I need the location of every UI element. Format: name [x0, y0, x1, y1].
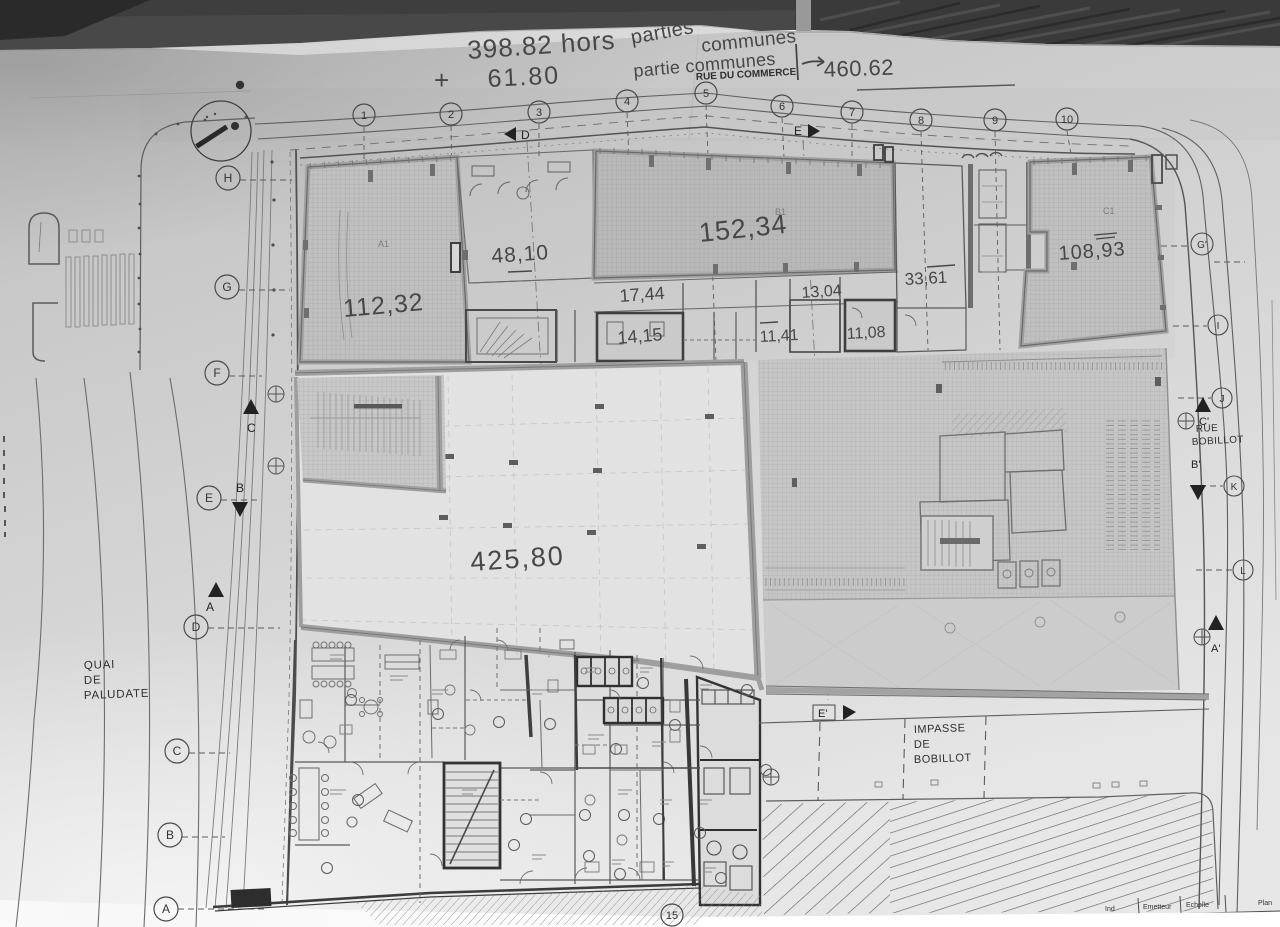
- svg-text:J: J: [1220, 394, 1225, 405]
- svg-text:L: L: [1240, 566, 1246, 577]
- svg-text:1: 1: [361, 110, 367, 122]
- svg-text:G': G': [1197, 240, 1207, 251]
- svg-text:DE: DE: [914, 738, 931, 751]
- svg-text:5: 5: [703, 88, 709, 100]
- svg-text:G: G: [222, 280, 231, 294]
- svg-text:IMPASSE: IMPASSE: [914, 722, 966, 736]
- svg-text:61.80: 61.80: [487, 61, 561, 93]
- svg-text:Echelle: Echelle: [1186, 902, 1209, 909]
- svg-text:E: E: [794, 124, 802, 138]
- svg-text:QUAI: QUAI: [84, 659, 116, 672]
- svg-text:C1: C1: [1103, 206, 1115, 216]
- svg-text:DE: DE: [84, 674, 102, 687]
- svg-text:Emetteur: Emetteur: [1143, 904, 1172, 911]
- svg-text:B1: B1: [775, 207, 786, 217]
- svg-text:F: F: [213, 366, 220, 380]
- svg-text:B: B: [166, 828, 174, 842]
- svg-text:9: 9: [992, 115, 998, 127]
- svg-text:B': B': [1191, 459, 1200, 471]
- svg-text:A1: A1: [378, 239, 389, 249]
- svg-text:17,44: 17,44: [619, 283, 665, 306]
- svg-text:A': A': [1211, 643, 1220, 655]
- svg-text:I: I: [1217, 321, 1220, 332]
- svg-text:+: +: [434, 65, 449, 95]
- svg-text:C: C: [247, 421, 256, 435]
- svg-text:6: 6: [779, 101, 785, 113]
- svg-text:3: 3: [536, 107, 542, 119]
- svg-text:108,93: 108,93: [1058, 238, 1127, 265]
- svg-text:13,04: 13,04: [801, 282, 842, 302]
- svg-text:8: 8: [918, 115, 924, 127]
- svg-text:RUE: RUE: [1196, 423, 1219, 435]
- svg-text:H: H: [224, 171, 233, 185]
- svg-text:Ind: Ind: [1105, 906, 1115, 913]
- svg-text:E: E: [205, 491, 213, 505]
- svg-text:15: 15: [666, 910, 678, 922]
- svg-text:10: 10: [1061, 114, 1073, 126]
- svg-text:BOBILLOT: BOBILLOT: [914, 752, 972, 766]
- svg-text:Plan: Plan: [1258, 900, 1272, 907]
- svg-text:7: 7: [849, 107, 855, 119]
- svg-text:A: A: [162, 902, 170, 916]
- svg-text:B: B: [236, 481, 244, 495]
- svg-text:33,61: 33,61: [904, 268, 947, 289]
- svg-text:PALUDATE: PALUDATE: [84, 688, 150, 702]
- svg-text:D: D: [192, 620, 201, 634]
- svg-text:D: D: [521, 128, 530, 142]
- svg-text:48,10: 48,10: [491, 241, 550, 268]
- svg-text:460.62: 460.62: [823, 55, 894, 82]
- svg-text:E': E': [818, 708, 827, 720]
- svg-text:K: K: [1231, 482, 1238, 493]
- svg-text:14,15: 14,15: [617, 324, 664, 348]
- svg-text:4: 4: [624, 96, 630, 108]
- svg-text:C: C: [173, 744, 182, 758]
- svg-text:A: A: [206, 600, 214, 614]
- svg-text:11,08: 11,08: [846, 324, 886, 343]
- svg-text:2: 2: [448, 109, 454, 121]
- svg-text:11,41: 11,41: [759, 327, 799, 346]
